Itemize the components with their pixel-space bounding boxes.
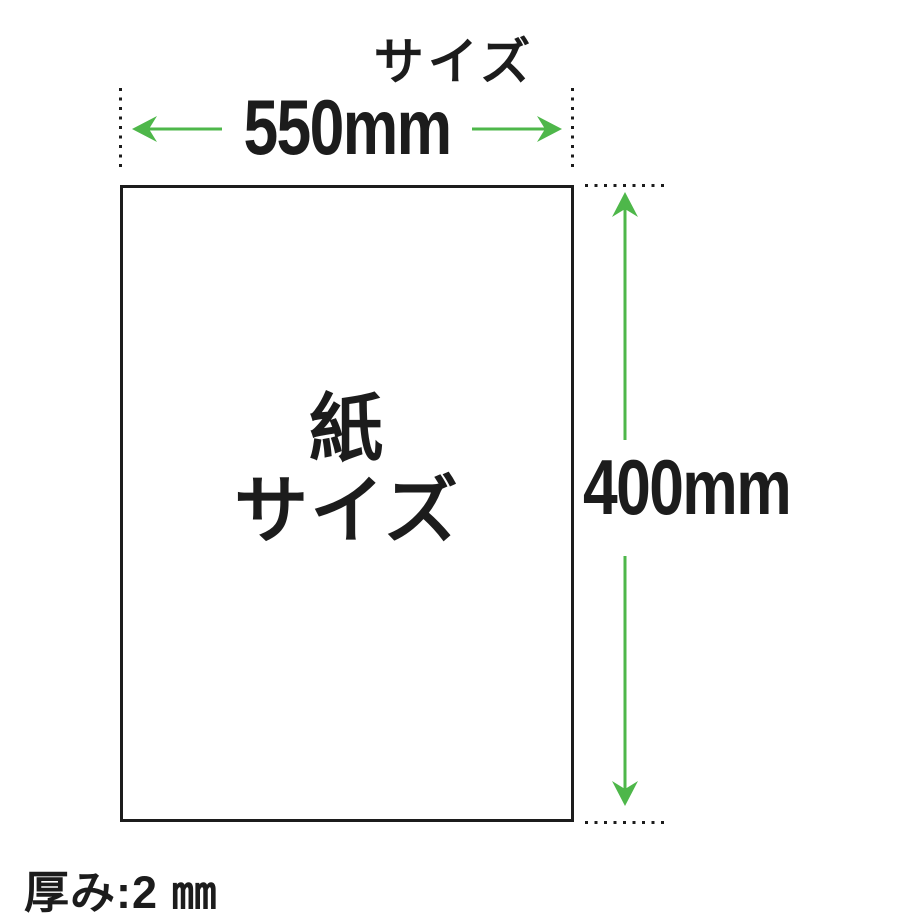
dimension-diagram: サイズ 550mm 紙 サイズ 400mm 厚み:2 ㎜ <box>0 0 901 922</box>
width-arrow-left-icon <box>132 116 222 142</box>
paper-label: 紙 サイズ <box>120 388 574 552</box>
height-arrow-down-icon <box>612 556 638 806</box>
paper-label-line1: 紙 <box>120 388 574 470</box>
width-dimension-value: 550mm <box>243 88 450 166</box>
width-dimension-label: 550mm <box>218 88 477 166</box>
paper-label-line2: サイズ <box>120 470 574 552</box>
thickness-note: 厚み:2 ㎜ <box>24 856 218 921</box>
height-dimension-label: 400mm <box>583 448 842 526</box>
height-dimension-value: 400mm <box>583 448 790 526</box>
width-arrow-right-icon <box>472 116 562 142</box>
height-arrow-up-icon <box>612 192 638 440</box>
